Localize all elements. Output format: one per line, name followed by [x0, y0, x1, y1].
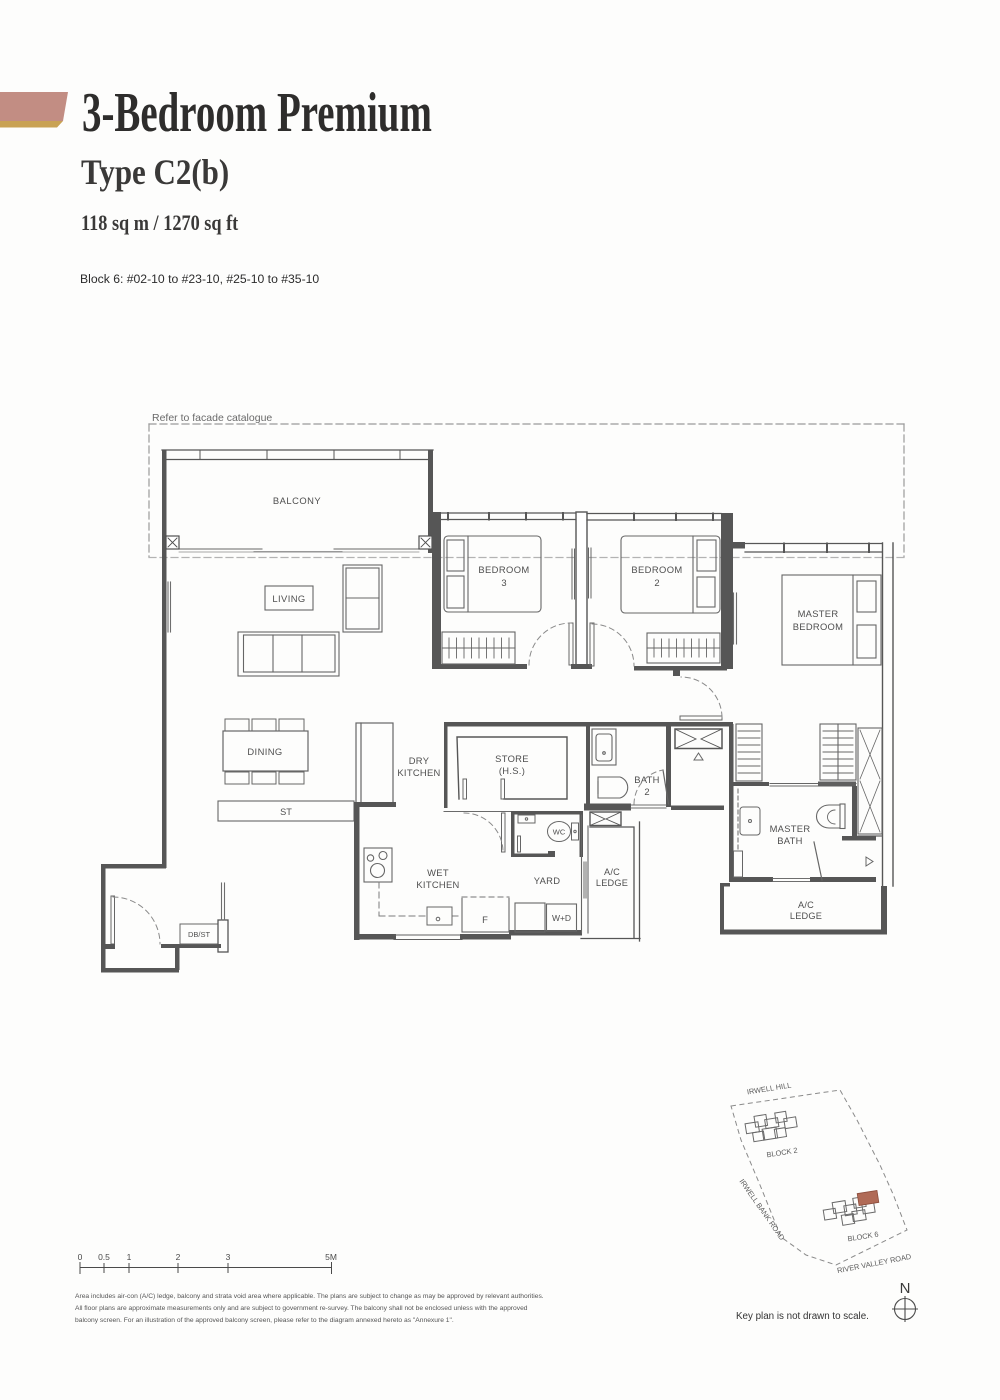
svg-text:BALCONY: BALCONY: [273, 495, 322, 506]
svg-text:LEDGE: LEDGE: [790, 911, 822, 921]
svg-text:WET: WET: [427, 867, 449, 878]
svg-text:BLOCK 6: BLOCK 6: [847, 1230, 879, 1244]
svg-text:0: 0: [78, 1252, 83, 1262]
svg-text:3: 3: [226, 1252, 231, 1262]
svg-text:1: 1: [127, 1252, 132, 1262]
svg-text:BEDROOM: BEDROOM: [793, 621, 844, 632]
svg-text:F: F: [482, 914, 488, 925]
svg-text:Refer to facade catalogue: Refer to facade catalogue: [152, 412, 272, 424]
svg-text:ST: ST: [280, 807, 292, 817]
svg-text:BEDROOM: BEDROOM: [631, 564, 682, 575]
svg-text:W+D: W+D: [552, 913, 571, 923]
svg-text:5M: 5M: [325, 1252, 337, 1262]
svg-text:IRWELL BANK ROAD: IRWELL BANK ROAD: [738, 1177, 787, 1242]
svg-text:N: N: [900, 1280, 911, 1297]
svg-text:3: 3: [501, 577, 506, 588]
svg-text:STORE: STORE: [495, 753, 529, 764]
svg-text:BLOCK 2: BLOCK 2: [766, 1146, 798, 1160]
svg-text:DINING: DINING: [247, 746, 282, 757]
svg-text:A/C: A/C: [604, 867, 620, 877]
svg-text:A/C: A/C: [798, 900, 814, 910]
svg-text:2: 2: [644, 786, 649, 797]
svg-text:MASTER: MASTER: [770, 823, 811, 834]
svg-text:RIVER VALLEY ROAD: RIVER VALLEY ROAD: [836, 1252, 912, 1275]
svg-text:2: 2: [176, 1252, 181, 1262]
svg-text:KITCHEN: KITCHEN: [397, 767, 440, 778]
svg-text:YARD: YARD: [534, 875, 561, 886]
svg-text:BATH: BATH: [634, 774, 660, 785]
svg-text:MASTER: MASTER: [798, 608, 839, 619]
svg-text:IRWELL HILL: IRWELL HILL: [746, 1081, 792, 1097]
svg-text:DB/ST: DB/ST: [188, 930, 211, 939]
svg-text:LEDGE: LEDGE: [596, 878, 628, 888]
svg-text:KITCHEN: KITCHEN: [416, 879, 459, 890]
svg-text:BATH: BATH: [777, 835, 803, 846]
svg-text:WC: WC: [553, 828, 566, 837]
svg-text:2: 2: [654, 577, 659, 588]
svg-text:DRY: DRY: [409, 755, 430, 766]
svg-text:(H.S.): (H.S.): [499, 765, 525, 776]
svg-text:0.5: 0.5: [98, 1252, 110, 1262]
svg-text:LIVING: LIVING: [272, 593, 305, 604]
svg-text:BEDROOM: BEDROOM: [478, 564, 529, 575]
